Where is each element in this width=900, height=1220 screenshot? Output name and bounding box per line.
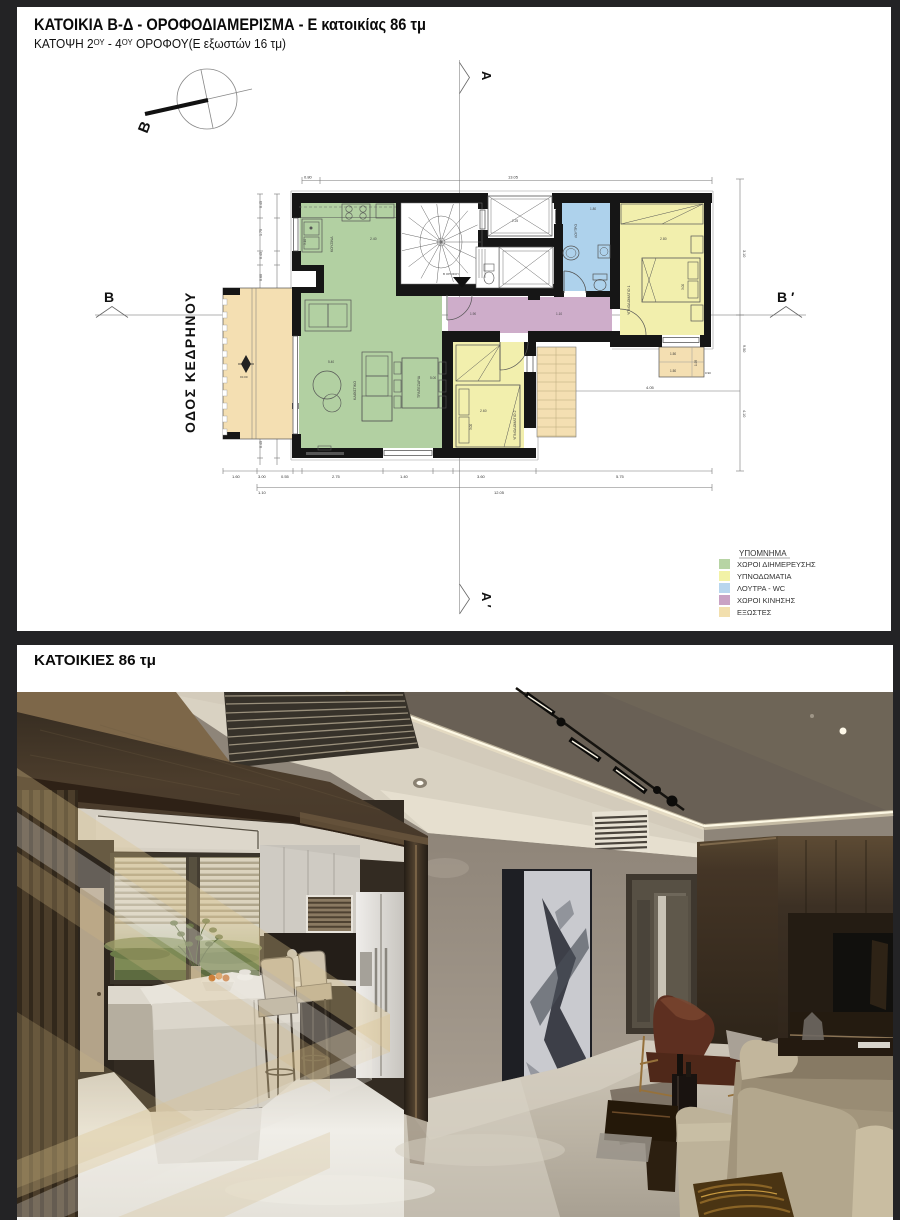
svg-text:13.05: 13.05	[508, 175, 519, 180]
svg-text:ΤΡΑΠΕΖΑΡΙΑ: ΤΡΑΠΕΖΑΡΙΑ	[417, 375, 421, 398]
svg-text:5.40: 5.40	[328, 360, 334, 364]
svg-text:1.40: 1.40	[400, 474, 409, 479]
svg-text:ΛΟΥΤΡΑ - WC: ΛΟΥΤΡΑ - WC	[737, 584, 786, 593]
svg-text:3.00: 3.00	[469, 424, 473, 430]
svg-text:ΥΠΝΟΔΩΜΑΤΙΟ 1: ΥΠΝΟΔΩΜΑΤΙΟ 1	[627, 285, 631, 315]
svg-text:1.95: 1.95	[694, 360, 698, 366]
svg-text:0.60: 0.60	[259, 274, 263, 281]
svg-text:ΚΑΘΙΣΤΙΚΟ: ΚΑΘΙΣΤΙΚΟ	[353, 381, 357, 400]
svg-text:1.60: 1.60	[232, 474, 241, 479]
svg-text:ΧΩΡΟΙ ΚΙΝΗΣΗΣ: ΧΩΡΟΙ ΚΙΝΗΣΗΣ	[737, 596, 796, 605]
svg-text:3.00: 3.00	[681, 284, 685, 290]
svg-text:ΥΠΟΜΝΗΜΑ: ΥΠΟΜΝΗΜΑ	[739, 549, 787, 558]
svg-text:4.10: 4.10	[742, 410, 746, 417]
svg-text:ΚΟΥΖΙΝΑ: ΚΟΥΖΙΝΑ	[330, 236, 334, 252]
svg-text:2.60: 2.60	[480, 409, 487, 413]
svg-text:ΕΞΩΣΤΕΣ: ΕΞΩΣΤΕΣ	[737, 608, 772, 617]
svg-text:3.10: 3.10	[742, 250, 746, 257]
svg-text:0.90: 0.90	[705, 371, 711, 375]
svg-text:0.45: 0.45	[259, 441, 263, 448]
svg-text:3.10: 3.10	[303, 239, 307, 245]
svg-text:3.60: 3.60	[477, 474, 486, 479]
svg-text:2.75: 2.75	[332, 474, 341, 479]
svg-text:0.55: 0.55	[281, 474, 290, 479]
svg-text:ΥΠΝΟΔΩΜΑΤΙΟ 2: ΥΠΝΟΔΩΜΑΤΙΟ 2	[513, 410, 517, 440]
svg-text:ΛΟΥΤΡΟ: ΛΟΥΤΡΟ	[574, 224, 578, 238]
svg-text:1.50: 1.50	[670, 352, 676, 356]
svg-text:9.50: 9.50	[742, 345, 746, 352]
svg-text:5.00: 5.00	[430, 376, 436, 380]
svg-text:ΥΠΝΟΔΩΜΑΤΙΑ: ΥΠΝΟΔΩΜΑΤΙΑ	[737, 572, 792, 581]
svg-text:1.90: 1.90	[470, 312, 476, 316]
svg-text:2.80: 2.80	[660, 237, 667, 241]
svg-text:4.05: 4.05	[646, 385, 655, 390]
svg-text:B ′: B ′	[777, 289, 795, 305]
svg-text:1.80: 1.80	[590, 207, 596, 211]
svg-text:1.50: 1.50	[670, 369, 676, 373]
svg-text:A: A	[479, 71, 494, 81]
svg-text:ΚΑΤΟΙΚΙΑ Β-Δ - ΟΡΟΦΟΔΙΑΜΕΡΙΣΜΑ: ΚΑΤΟΙΚΙΑ Β-Δ - ΟΡΟΦΟΔΙΑΜΕΡΙΣΜΑ - Ε κατοι…	[34, 15, 426, 34]
svg-text:3.00: 3.00	[258, 474, 267, 479]
svg-text:12.05: 12.05	[494, 490, 505, 495]
svg-text:1.75: 1.75	[259, 229, 263, 236]
svg-text:0.45: 0.45	[259, 201, 263, 208]
svg-text:ΧΩΡΟΙ ΔΙΗΜΕΡΕΥΣΗΣ: ΧΩΡΟΙ ΔΙΗΜΕΡΕΥΣΗΣ	[737, 560, 816, 569]
svg-text:ΚΑΤΟΨΗ 2ΟΥ - 4ΟΥ ΟΡΟΦΟΥ(Ε εξωσ: ΚΑΤΟΨΗ 2ΟΥ - 4ΟΥ ΟΡΟΦΟΥ(Ε εξωστών 16 τμ)	[34, 36, 286, 51]
svg-text:2.40: 2.40	[370, 237, 377, 241]
svg-text:ΟΔΟΣ ΚΕΔΡΗΝΟΥ: ΟΔΟΣ ΚΕΔΡΗΝΟΥ	[182, 291, 198, 433]
svg-text:0.45: 0.45	[259, 252, 263, 259]
svg-text:B: B	[104, 289, 114, 305]
svg-text:±0.00: ±0.00	[240, 375, 248, 379]
svg-text:A ′: A ′	[479, 592, 494, 608]
svg-text:2.25: 2.25	[512, 219, 518, 223]
svg-text:1.10: 1.10	[258, 490, 267, 495]
svg-text:Β ΟΡΟΦΟΥ: Β ΟΡΟΦΟΥ	[443, 272, 459, 276]
svg-text:ΚΑΤΟΙΚΙΕΣ 86 τμ: ΚΑΤΟΙΚΙΕΣ 86 τμ	[34, 653, 156, 669]
svg-text:5.75: 5.75	[616, 474, 625, 479]
svg-text:0.80: 0.80	[304, 175, 313, 180]
svg-text:1.10: 1.10	[556, 312, 562, 316]
